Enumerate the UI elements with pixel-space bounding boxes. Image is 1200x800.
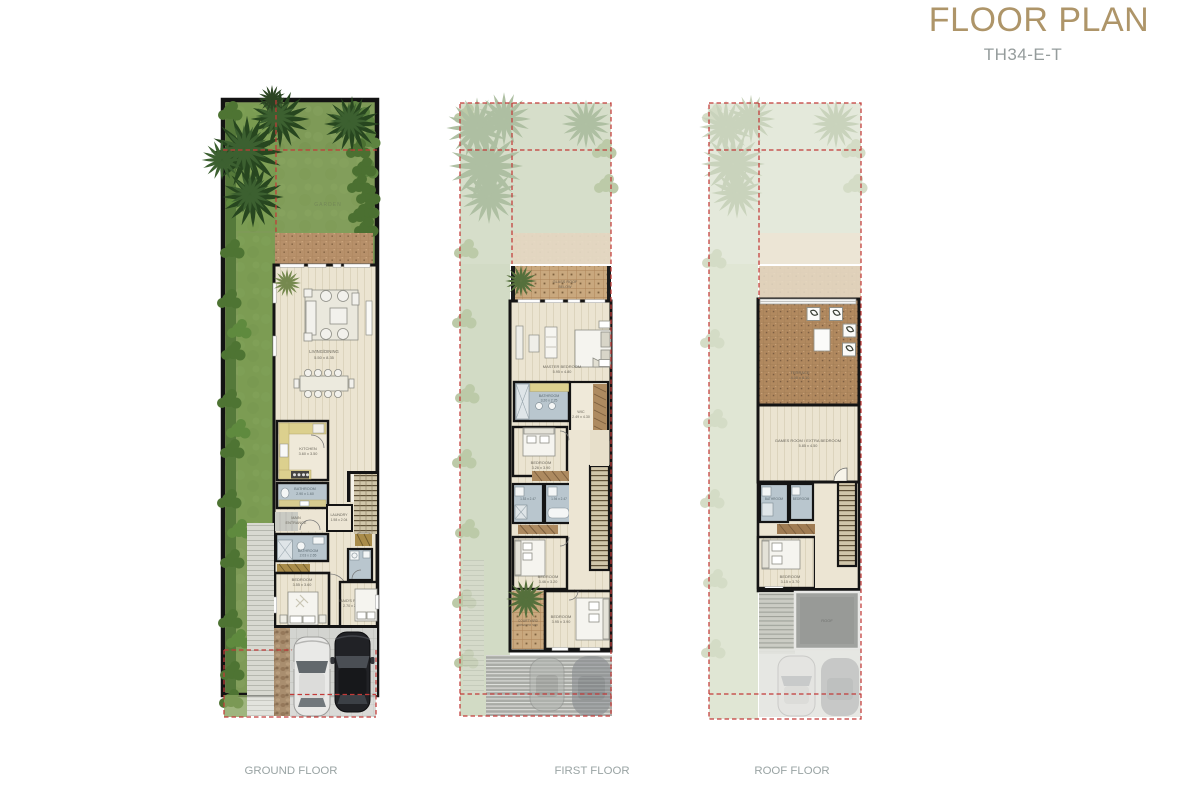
svg-text:BATHROOM: BATHROOM (765, 497, 784, 501)
svg-text:GROUND FLOOR: GROUND FLOOR (244, 765, 337, 777)
svg-text:BEDROOM: BEDROOM (292, 577, 313, 582)
svg-text:5.50 x 8.35: 5.50 x 8.35 (314, 355, 335, 360)
svg-text:OPEN TO SKY: OPEN TO SKY (518, 623, 538, 627)
svg-text:3.60 x 3.50: 3.60 x 3.50 (299, 452, 318, 456)
svg-text:TERRACE: TERRACE (790, 370, 809, 375)
svg-text:GLASS ROOF: GLASS ROOF (553, 280, 578, 284)
svg-text:BEDROOM: BEDROOM (538, 574, 559, 579)
svg-text:BATHROOM: BATHROOM (539, 394, 560, 398)
svg-text:2.90 x 1.60: 2.90 x 1.60 (296, 492, 314, 496)
svg-text:LIVING/DINING: LIVING/DINING (309, 349, 339, 354)
svg-text:BEDROOM: BEDROOM (531, 460, 552, 465)
svg-text:TH34-E-T: TH34-E-T (984, 45, 1063, 64)
svg-text:ENTRANCE: ENTRANCE (286, 521, 307, 525)
svg-text:1.53 x 2.47: 1.53 x 2.47 (520, 497, 536, 501)
svg-text:3.26 x 3.90: 3.26 x 3.90 (532, 466, 551, 470)
svg-text:3.55 x 3.60: 3.55 x 3.60 (293, 583, 312, 587)
svg-text:3.46 x 3.20: 3.46 x 3.20 (539, 580, 558, 584)
svg-text:FLOOR PLAN: FLOOR PLAN (929, 1, 1149, 39)
svg-text:BATHROOM: BATHROOM (298, 549, 319, 553)
svg-text:3.15 x 3.70: 3.15 x 3.70 (781, 580, 800, 584)
svg-text:5.85 x 4.50: 5.85 x 4.50 (799, 444, 818, 448)
svg-text:3.95 x 3.90: 3.95 x 3.90 (552, 620, 571, 624)
svg-text:ROOF FLOOR: ROOF FLOOR (754, 765, 829, 777)
svg-text:BEDROOM: BEDROOM (551, 614, 572, 619)
svg-text:WIC: WIC (577, 410, 585, 414)
svg-text:GAMES ROOM / EXTRA BEDROOM: GAMES ROOM / EXTRA BEDROOM (775, 438, 841, 443)
svg-text:BATHROOM: BATHROOM (294, 487, 316, 491)
svg-text:1.98 x 2.04: 1.98 x 2.04 (331, 518, 348, 522)
svg-text:MASTER BEDROOM: MASTER BEDROOM (543, 364, 581, 369)
svg-text:BELOW: BELOW (559, 285, 573, 289)
svg-text:4.00 x 6.10: 4.00 x 6.10 (791, 376, 810, 380)
svg-text:3.20 x 2.25: 3.20 x 2.25 (541, 399, 558, 403)
svg-text:BEDROOM: BEDROOM (793, 497, 810, 501)
svg-text:FIRST FLOOR: FIRST FLOOR (554, 765, 629, 777)
svg-text:2.03 x 2.65: 2.03 x 2.65 (300, 554, 317, 558)
svg-text:BEDROOM: BEDROOM (780, 574, 801, 579)
svg-text:1.94 x 2.47: 1.94 x 2.47 (551, 497, 567, 501)
svg-text:KITCHEN: KITCHEN (299, 446, 317, 451)
svg-text:ROOF: ROOF (821, 618, 833, 623)
svg-text:LAUNDRY: LAUNDRY (330, 513, 348, 517)
svg-text:5.95 x 4.80: 5.95 x 4.80 (553, 370, 572, 374)
svg-text:GARDEN: GARDEN (314, 202, 341, 208)
svg-text:2.49 x 4.30: 2.49 x 4.30 (572, 415, 590, 419)
svg-text:MAIN: MAIN (291, 516, 301, 520)
